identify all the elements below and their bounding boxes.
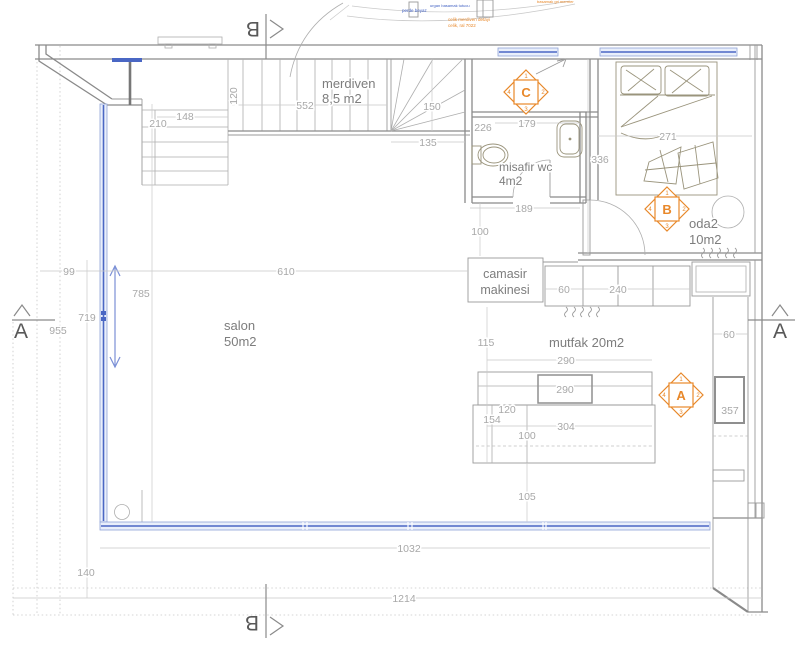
label-oda2-area: 10m2 (689, 232, 722, 247)
dim-336: 336 (591, 154, 609, 166)
radiator-kitchen (565, 307, 600, 317)
dim-154: 154 (483, 414, 501, 426)
dim-179: 179 (518, 118, 536, 130)
svg-text:C: C (521, 85, 531, 100)
top-detail-sketch: basamak gri mermer urgan basamak tutucu … (290, 0, 575, 77)
dim-290-island: 290 (556, 384, 574, 396)
section-marker-b-top: B (246, 14, 283, 59)
floor-plan-page: 120 148 210 552 150 135 226 179 189 100 … (0, 0, 800, 650)
section-marker-b-bottom: B (245, 584, 283, 638)
section-marker-a-left: A (12, 305, 55, 343)
dim-189: 189 (515, 203, 533, 215)
dim-100-island: 100 (518, 430, 536, 442)
label-camasir-1: camasir (483, 267, 527, 281)
dim-290-line: 290 (557, 355, 575, 367)
window-sill-mark (112, 58, 142, 62)
annotation-note3: perde beyaz (402, 8, 428, 13)
label-misafir-wc-area: 4m2 (499, 174, 523, 188)
dim-60-counter: 60 (558, 284, 570, 296)
label-salon: salon (224, 318, 255, 333)
detail-marker-c: C 1 2 3 4 (504, 70, 548, 114)
label-salon-area: 50m2 (224, 334, 257, 349)
window-handle-mark (101, 317, 106, 321)
dim-140: 140 (77, 567, 95, 579)
dim-135: 135 (419, 137, 437, 149)
dim-210: 210 (149, 118, 167, 130)
dim-240: 240 (609, 284, 627, 296)
svg-text:B: B (246, 17, 260, 40)
dim-271: 271 (659, 131, 677, 143)
dim-304: 304 (557, 421, 575, 433)
dim-60-right: 60 (723, 329, 735, 341)
annotation-note4: celik merdiven detayi (448, 17, 490, 22)
dim-552: 552 (296, 100, 314, 112)
dim-105: 105 (518, 491, 536, 503)
label-merdiven: merdiven (322, 76, 375, 91)
dim-1032: 1032 (397, 543, 421, 555)
bed (616, 62, 718, 195)
label-camasir-2: makinesi (480, 283, 529, 297)
dim-719: 719 (78, 312, 96, 324)
dim-120-island: 120 (498, 404, 516, 416)
detail-marker-b: B 1 2 3 4 (645, 187, 689, 231)
column-circle (115, 505, 130, 520)
label-oda2: oda2 (689, 216, 718, 231)
svg-text:A: A (14, 320, 28, 343)
svg-text:A: A (773, 320, 787, 343)
dim-955: 955 (49, 325, 67, 337)
dim-148: 148 (176, 111, 194, 123)
detail-marker-a: A 1 2 3 4 (659, 373, 703, 417)
floor-plan-drawing: 120 148 210 552 150 135 226 179 189 100 … (0, 0, 800, 650)
dim-99: 99 (63, 266, 75, 278)
entry-arrow (536, 59, 566, 74)
svg-text:B: B (662, 202, 671, 217)
right-counter (713, 377, 748, 481)
wash-basin (557, 121, 582, 157)
svg-text:B: B (245, 611, 259, 634)
dim-150: 150 (423, 101, 441, 113)
radiator-oda2 (692, 248, 750, 296)
label-merdiven-area: 8,5 m2 (322, 91, 362, 106)
dim-610: 610 (277, 266, 295, 278)
dimension-lines (13, 59, 762, 598)
dim-226: 226 (474, 122, 492, 134)
label-mutfak: mutfak 20m2 (549, 335, 624, 350)
dim-120: 120 (228, 87, 240, 105)
annotation-note2: urgan basamak tutucu (430, 3, 470, 8)
dim-1214: 1214 (392, 593, 416, 605)
window-handle-mark (101, 311, 106, 315)
bench (158, 37, 222, 48)
sliding-window-arrow (110, 266, 120, 367)
annotation-note5: celik, ral 7022 (448, 23, 476, 28)
leader-curve (290, 3, 343, 77)
winder-fan (391, 59, 465, 131)
label-misafir-wc: misafir wc (499, 160, 552, 174)
dim-785: 785 (132, 288, 150, 300)
annotation-note1: basamak gri mermer (537, 0, 574, 4)
dim-357: 357 (721, 405, 739, 417)
oda2-door (583, 200, 645, 255)
dim-115: 115 (478, 337, 495, 349)
svg-text:A: A (676, 388, 686, 403)
dim-100-hall: 100 (471, 226, 489, 238)
